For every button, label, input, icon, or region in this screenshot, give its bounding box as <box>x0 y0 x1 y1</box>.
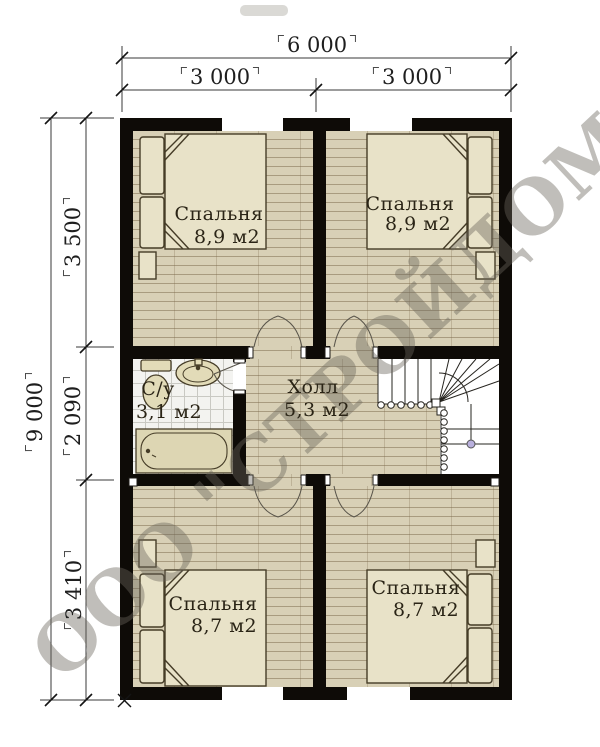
dim-left-total: 9 000 <box>23 373 47 451</box>
room-area-bedroom-top-right: 8,9 м2 <box>385 213 451 235</box>
dim-left-bottom: 3 410 <box>62 551 86 629</box>
corner-cross-icon <box>118 694 131 707</box>
room-name-bathroom: С/у <box>141 378 175 400</box>
room-area-hall: 5,3 м2 <box>284 399 350 421</box>
room-name-bedroom-bottom-left: Спальня <box>168 593 257 615</box>
room-name-bedroom-top-right: Спальня <box>365 193 454 215</box>
dim-top-total: 6 000 <box>278 33 356 57</box>
floor-plan: 6 000 3 000 3 000 9 000 3 500 2 090 3 41… <box>0 0 600 747</box>
room-area-bedroom-bottom-right: 8,7 м2 <box>393 599 459 621</box>
dim-left-top: 3 500 <box>61 198 85 276</box>
room-area-bedroom-top-left: 8,9 м2 <box>194 226 260 248</box>
room-name-bedroom-bottom-right: Спальня <box>371 577 460 599</box>
room-area-bedroom-bottom-left: 8,7 м2 <box>191 615 257 637</box>
room-name-bedroom-top-left: Спальня <box>174 203 263 225</box>
dim-top-left: 3 000 <box>181 65 259 89</box>
dim-top-right: 3 000 <box>373 65 451 89</box>
room-area-bathroom: 3,1 м2 <box>136 401 202 423</box>
room-name-hall: Холл <box>287 376 338 398</box>
sink-icon <box>176 359 220 386</box>
dim-left-mid: 2 090 <box>61 377 85 455</box>
